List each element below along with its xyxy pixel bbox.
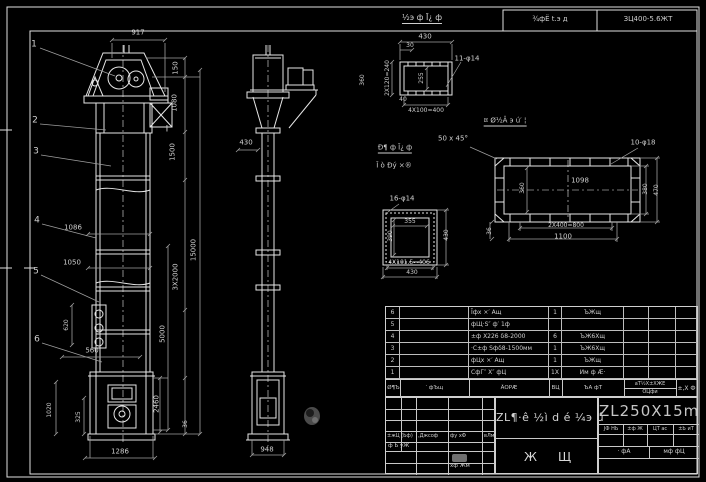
title-block-title-cell: ZL¶·ê ½ì d é ¼э ú Ж Щ — [495, 397, 598, 474]
bom-cell — [676, 367, 697, 379]
bom-cell — [649, 367, 676, 379]
bom-cell — [649, 355, 676, 367]
dim-11holes: 11-φ14 — [455, 56, 480, 63]
rb-c1: ЈФ НЬ — [600, 427, 622, 432]
detail-a-title: ½э ф Ī¿ ф — [402, 14, 442, 24]
dim-2460: 2460 — [154, 395, 161, 413]
dim-30: 30 — [406, 43, 414, 49]
header-note-cell: ¾фЁ t.э д — [510, 16, 590, 23]
bom-cell — [549, 319, 562, 331]
bom-header-code: ′ фЪщ — [400, 386, 469, 392]
bom-cell: 4 — [386, 331, 400, 343]
bom-cell: 1 — [549, 355, 562, 367]
bom-cell: 2 — [386, 355, 400, 367]
bom-cell — [676, 343, 697, 355]
bom-cell — [400, 307, 469, 319]
bom-cell — [649, 307, 676, 319]
section-mark: I — [166, 126, 169, 135]
bom-cell — [562, 319, 624, 331]
bom-cell — [676, 307, 697, 319]
dim-1080: 1080 — [172, 94, 179, 112]
detail-c-title: ¤ Ø½Â э ú′ ¦ — [484, 118, 527, 127]
bom-cell — [624, 355, 649, 367]
balloon-6: 6 — [34, 336, 40, 345]
bom-header-remark: ±,Х Ф — [676, 386, 697, 392]
rb-c3: ЦΤ аc — [648, 427, 672, 432]
bom-cell: 1 — [549, 343, 562, 355]
dim-255: 255 — [419, 72, 425, 83]
bom-cell — [400, 319, 469, 331]
dim-430-sq-r: 430 — [444, 229, 450, 240]
bom-header-no: Ø¶Ъ — [387, 386, 400, 392]
bom-cell — [400, 343, 469, 355]
detail-b-title-1: Đ¶ ф Ī¿ ф — [378, 145, 412, 154]
bom-cell — [400, 331, 469, 343]
dim-3x2000: 3Х2000 — [173, 263, 180, 290]
dim-620: 620 — [64, 319, 70, 330]
rb-b1: · фА — [599, 449, 649, 455]
stamp-char-1: Ж — [524, 451, 537, 463]
bom-cell: ЪЖ6Хщ — [562, 343, 624, 355]
bom-header-single: ÓЦфи — [624, 390, 676, 395]
model-number: ZL250X15m — [599, 404, 699, 419]
bom-table: 6Ĩфх ×′ Ащ1ЪЖщ5фЩ·Ѕ″ ф′ 1ф4±ф Х226 δ8-20… — [385, 306, 698, 397]
bom-cell: ·С±ф Ѕфδ8-1500мм — [469, 343, 549, 355]
bom-cell — [624, 307, 649, 319]
bom-cell — [400, 355, 469, 367]
sig-h2: ,Джсоф — [418, 434, 447, 439]
rb-b2: мф фЦ — [649, 449, 699, 455]
bom-cell — [624, 367, 649, 379]
sig-r3: хф Жм — [450, 464, 480, 470]
bom-cell: Ĩфх ×′ Ащ — [469, 307, 549, 319]
bom-cell: 1 — [549, 307, 562, 319]
bom-cell — [649, 319, 676, 331]
dim-1100: 1100 — [554, 234, 572, 241]
bom-cell — [676, 319, 697, 331]
dim-16holes: 16-φ14 — [390, 196, 415, 203]
note-chamfer: 50 x 45° — [438, 136, 468, 143]
bom-cell — [676, 355, 697, 367]
dim-380: 380 — [643, 183, 649, 194]
bom-cell — [649, 343, 676, 355]
bom-cell: ЪЖ6Хщ — [562, 331, 624, 343]
dim-1020: 1020 — [47, 402, 53, 417]
bom-cell — [624, 331, 649, 343]
rb-c4: ±Ь иТ — [674, 427, 698, 432]
dim-2x400: 2Х400=800 — [548, 223, 584, 229]
dim-917: 917 — [131, 30, 144, 37]
dim-560: 560 — [85, 348, 98, 355]
bom-header-qty: ВЦ — [549, 386, 562, 392]
detail-b-title-2: Ĩ ò Đý ×® — [376, 163, 411, 170]
bom-header: Ø¶Ъ ′ фЪщ ÃОРÆ ВЦ ЪА фТ аТ½Х±ХЖЕ ÓЦфи ±,… — [386, 379, 697, 397]
dim-1098: 1098 — [571, 178, 589, 185]
dim-36-front: 36 — [183, 420, 189, 428]
dim-360-flange: 360 — [520, 182, 526, 193]
dim-390: 390 — [388, 230, 394, 241]
rb-c2: ±ф Ж — [624, 427, 646, 432]
front-elevation-view — [84, 45, 172, 442]
title-block-model: ZL250X15m ЈФ НЬ ±ф Ж ЦΤ аc ±Ь иТ · фА мф… — [598, 397, 698, 474]
dim-5000: 5000 — [160, 325, 167, 343]
title-block-signatures: ±жЦ (Ьф) ,Джсоф фу хФ вЛм ф Ь уЖ хф Жм — [385, 397, 495, 474]
balloon-1: 1 — [31, 41, 37, 50]
bom-header-name: ÃОРÆ — [469, 386, 549, 392]
bom-cell: 6 — [386, 307, 400, 319]
dim-2x120: 2Х120=240 — [385, 60, 391, 96]
dim-36-flange: 36 — [487, 227, 493, 235]
sig-r2: ф Ь уЖ — [388, 444, 415, 450]
bom-cell: фЦх ×′ Ащ — [469, 355, 549, 367]
bom-cell: ЪЖщ — [562, 307, 624, 319]
bom-cell — [624, 319, 649, 331]
dim-430-sq-b: 430 — [406, 270, 417, 276]
balloon-4: 4 — [34, 217, 40, 226]
sig-h1: ±жЦ (Ьф) — [387, 434, 415, 439]
dim-1050: 1050 — [63, 260, 81, 267]
bom-header-weight: аТ½Х±ХЖЕ — [624, 382, 676, 387]
drawing-title: ZL¶·ê ½ì d é ¼э ú — [496, 412, 599, 423]
balloon-3: 3 — [33, 148, 39, 157]
signature-stamp — [452, 454, 467, 462]
bom-rows: 6Ĩфх ×′ Ащ1ЪЖщ5фЩ·Ѕ″ ф′ 1ф4±ф Х226 δ8-20… — [386, 307, 697, 379]
balloon-2: 2 — [32, 117, 38, 126]
dim-355: 355 — [404, 219, 415, 225]
dim-430-det: 430 — [418, 34, 431, 41]
bom-cell: Им ф Æ· — [562, 367, 624, 379]
stamp-char-2: Щ — [558, 451, 571, 463]
sig-h3: фу хФ — [450, 434, 481, 439]
bom-cell — [676, 331, 697, 343]
bom-cell: ±ф Х226 δ8-2000 — [469, 331, 549, 343]
detail-c-flange — [495, 158, 640, 222]
balloon-5: 5 — [33, 268, 39, 277]
header-spec-cell: ЗЦ400-5.6ЖΤ — [605, 16, 691, 23]
dim-1086: 1086 — [64, 225, 82, 232]
dim-1286: 1286 — [111, 449, 129, 456]
bom-cell: фЩ·Ѕ″ ф′ 1ф — [469, 319, 549, 331]
dim-948: 948 — [260, 447, 273, 454]
bom-cell: 5 — [386, 319, 400, 331]
dim-150: 150 — [173, 61, 180, 74]
bom-cell: 1 — [386, 367, 400, 379]
bom-cell: 6 — [549, 331, 562, 343]
side-elevation-view — [246, 45, 320, 446]
dim-40: 40 — [399, 97, 407, 103]
bom-cell — [649, 331, 676, 343]
dim-4x1015: 4Х101.5=406 — [388, 260, 430, 266]
dim-430-side: 430 — [239, 140, 252, 147]
bom-header-material: ЪА фТ — [562, 386, 624, 392]
dim-360-side: 360 — [360, 74, 366, 85]
bom-cell: СфГ″ Х″ фЦ — [469, 367, 549, 379]
bom-cell: ЪЖщ — [562, 355, 624, 367]
dim-4x100: 4Х100=400 — [408, 108, 444, 114]
cad-drawing-sheet: ¾фЁ t.э д ЗЦ400-5.6ЖΤ ½э ф Ī¿ ф917150108… — [0, 0, 706, 482]
bom-cell: 3 — [386, 343, 400, 355]
dim-325: 325 — [76, 411, 82, 422]
dim-10holes: 10-φ18 — [631, 140, 656, 147]
sig-h4: вЛм — [484, 434, 495, 439]
bom-cell — [400, 367, 469, 379]
bom-cell — [624, 343, 649, 355]
dim-1500: 1500 — [170, 143, 177, 161]
dim-470: 470 — [654, 184, 660, 195]
dim-15000: 15000 — [191, 239, 198, 261]
bom-cell: 1Х — [549, 367, 562, 379]
